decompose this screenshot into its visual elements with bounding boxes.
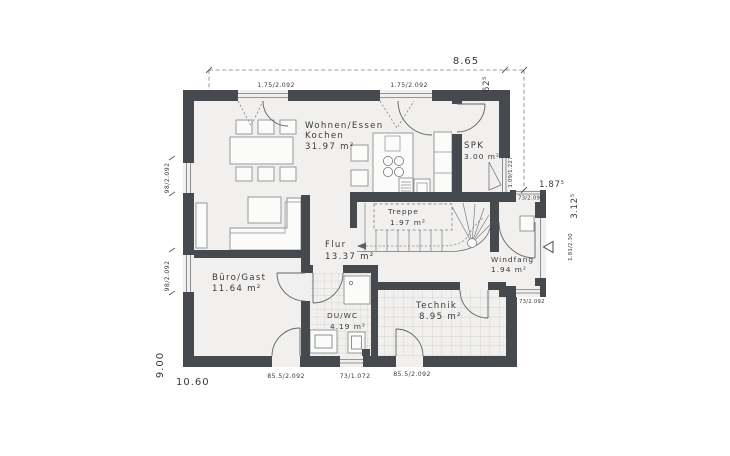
window-top-left [238,90,288,101]
dim-windfang-window-top: 73/2.092 [518,196,544,202]
door-technik-south [396,356,423,367]
dim-window-top-right: 1.75/2.092 [390,82,428,89]
window-duwc [340,356,363,367]
wall-west [183,90,194,367]
window-windfang-bottom [516,286,540,297]
coffee-table [248,197,281,223]
sideboard [196,203,207,248]
room-label-duwc-area: 4.19 m² [330,322,366,331]
dim-top-overhang: 62⁵ [482,76,492,92]
dining-chair [280,167,296,181]
window-top-right [380,90,432,101]
wall-flur-west-upper [301,195,310,273]
floor-plan-page: Wohnen/Essen Kochen 31.97 m² SPK 3.00 m²… [0,0,730,456]
room-label-buero-area: 11.64 m² [212,284,262,294]
kitchen-tall-cabinet [434,132,452,198]
door-buero-terrace [272,356,300,367]
window-left-upper [183,163,194,193]
dining-chair [236,167,252,181]
dim-window-spk: 1.09/1.227 [508,156,514,187]
dining-chair [258,167,274,181]
room-label-flur-area: 13.37 m² [325,252,375,262]
dim-door-buero-terrace: 85.5/2.092 [267,373,305,380]
dim-window-top-left: 1.75/2.092 [257,82,295,89]
room-label-wohnen-name2: Kochen [305,131,344,141]
wall-duwc-east [371,265,378,356]
room-label-wohnen-name1: Wohnen/Essen [305,121,384,131]
room-label-technik-name: Technik [415,301,457,311]
wall-stair-west [350,202,357,228]
bar-stool [351,170,368,186]
room-label-buero-name: Büro/Gast [212,273,266,283]
window-left-lower [183,255,194,292]
windfang-wardrobe [520,216,534,231]
room-technik-tiles [378,290,506,356]
room-label-windfang-name: Windfang [491,255,534,264]
wall-kitchen-stairs [350,192,499,202]
wall-windfang-west [490,202,499,252]
room-label-duwc-name: DU/WC [327,311,358,320]
wall-east-lower [506,286,517,367]
dining-chair [280,120,296,134]
dim-right-upper: 1.87⁵ [539,180,565,190]
dim-top-total: 8.65 [453,56,479,67]
shower [344,276,370,304]
dim-window-left-lower: 98/2.092 [164,261,171,292]
room-label-spk-name: SPK [464,141,484,151]
dim-window-left-upper: 98/2.092 [164,163,171,194]
dining-table [230,137,293,164]
duct-shaft [362,349,370,356]
room-label-spk-area: 3.00 m² [464,152,500,161]
dim-door-technik: 85.5/2.092 [393,371,431,378]
wall-flur-west-lower [301,301,310,356]
room-label-treppe-area: 1.97 m² [390,218,426,227]
dim-window-duwc: 73/1.072 [340,373,371,380]
room-label-treppe-name: Treppe [387,207,419,216]
dim-windfang-window-bottom: 73/2.092 [519,299,545,305]
dim-bottom-total: 10.60 [176,377,210,388]
floor-plan-canvas: Wohnen/Essen Kochen 31.97 m² SPK 3.00 m²… [0,0,730,456]
wall-duwc-north-a [301,265,313,273]
wall-technik-north-b [488,282,506,290]
room-label-windfang-area: 1.94 m² [491,265,527,274]
room-label-technik-area: 8.95 m² [419,312,462,322]
wall-technik-north-a [378,282,460,290]
room-label-flur-name: Flur [325,240,347,250]
wall-north [183,90,510,101]
wall-wohnen-buero [183,250,310,258]
room-label-wohnen-area: 31.97 m² [305,142,355,152]
dim-entry-door: 1.81/2.30 [568,233,574,261]
dining-chair [258,120,274,134]
stair-newel-post [468,239,477,248]
dining-chair [236,120,252,134]
door-spk [452,104,462,134]
vanity-sink [310,330,337,353]
dim-right-windfang: 3.12⁵ [570,193,580,219]
dim-left-total: 9.00 [155,352,166,378]
